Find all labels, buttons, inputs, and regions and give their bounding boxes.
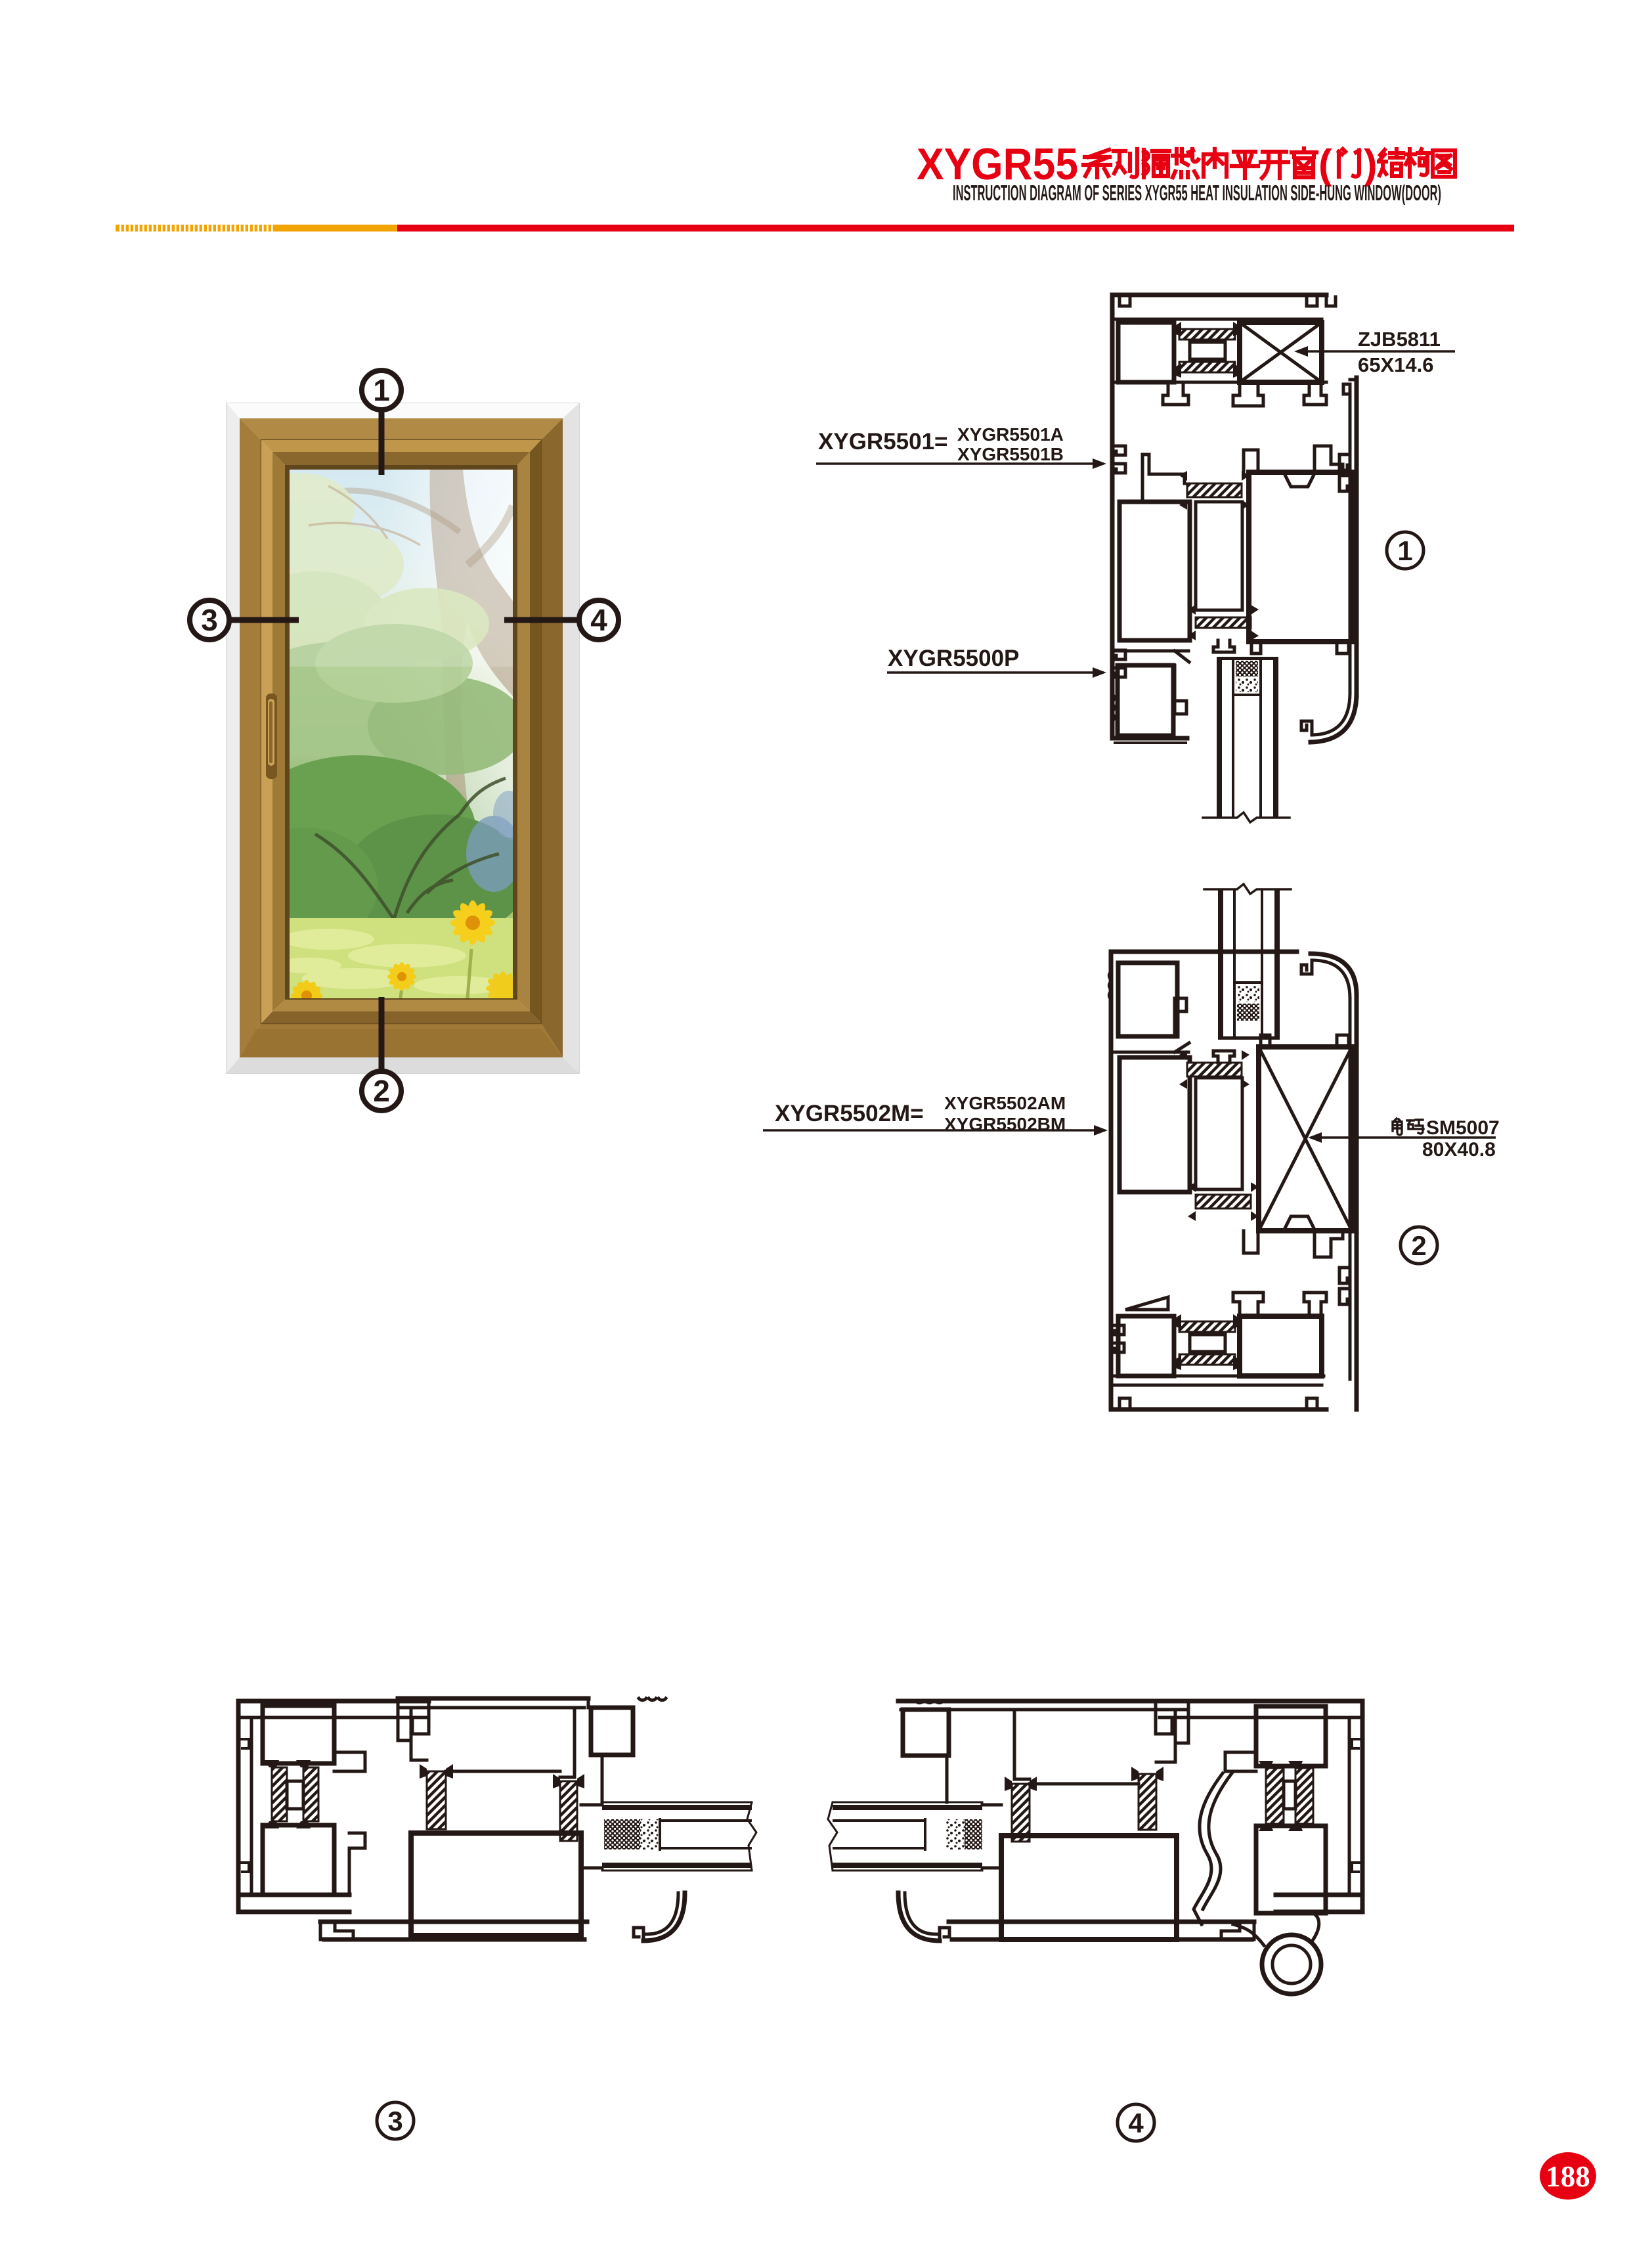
- svg-text:XYGR5501A: XYGR5501A: [957, 424, 1064, 445]
- svg-text:1: 1: [373, 373, 390, 407]
- svg-text:4: 4: [590, 603, 607, 637]
- svg-text:INSTRUCTION DIAGRAM OF SERIES: INSTRUCTION DIAGRAM OF SERIES XYGR55 HEA…: [953, 181, 1441, 205]
- svg-text:4: 4: [1128, 2108, 1144, 2138]
- svg-text:XYGR5501B: XYGR5501B: [957, 444, 1064, 464]
- svg-text:188: 188: [1546, 2160, 1590, 2193]
- svg-text:3: 3: [387, 2106, 402, 2136]
- svg-text:XYGR5502AM: XYGR5502AM: [944, 1093, 1066, 1113]
- svg-text:ZJB5811: ZJB5811: [1358, 328, 1441, 351]
- svg-text:XYGR5501=: XYGR5501=: [818, 429, 948, 454]
- svg-text:XYGR5500P: XYGR5500P: [888, 646, 1019, 671]
- svg-text:XYGR5502M=: XYGR5502M=: [775, 1101, 924, 1126]
- svg-text:SM5007: SM5007: [1426, 1117, 1500, 1139]
- svg-text:2: 2: [373, 1074, 390, 1108]
- svg-text:1: 1: [1397, 535, 1412, 566]
- svg-text:65X14.6: 65X14.6: [1358, 353, 1434, 376]
- svg-text:2: 2: [1411, 1230, 1426, 1261]
- svg-text:80X40.8: 80X40.8: [1422, 1139, 1496, 1161]
- svg-text:3: 3: [201, 603, 218, 637]
